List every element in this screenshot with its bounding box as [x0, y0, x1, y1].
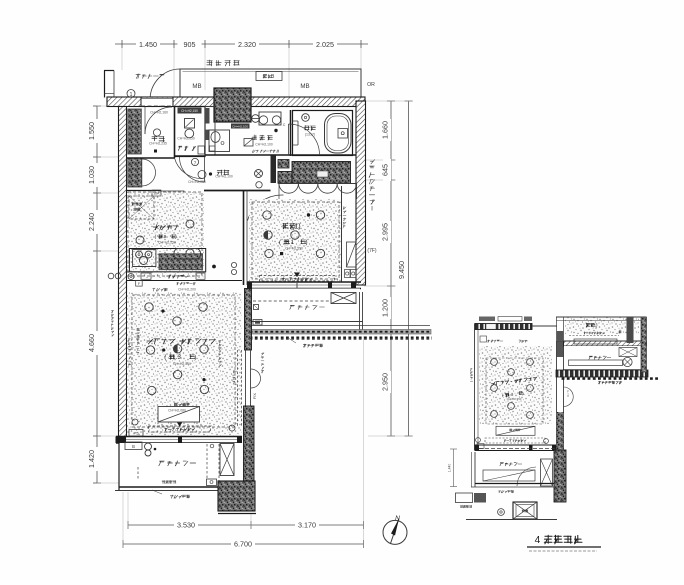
svg-text:CH=H2,550: CH=H2,550 — [173, 362, 191, 366]
svg-text:CH=H2,160: CH=H2,160 — [150, 111, 168, 115]
svg-text:1.450: 1.450 — [139, 40, 157, 49]
svg-text:645: 645 — [381, 164, 390, 176]
svg-text:2.9: 2.9 — [160, 234, 167, 240]
svg-text:20A: 20A — [154, 192, 161, 196]
svg-text:(7F): (7F) — [367, 248, 377, 254]
svg-text:(1): (1) — [592, 323, 598, 328]
svg-text:CH=H2,100: CH=H2,100 — [255, 143, 272, 147]
svg-text:6.700: 6.700 — [234, 539, 252, 548]
svg-text:I: I — [371, 206, 373, 213]
svg-text:FIX: FIX — [253, 393, 257, 399]
svg-text:9.450: 9.450 — [397, 261, 406, 279]
svg-text:2.320: 2.320 — [238, 40, 256, 49]
svg-text:1.200: 1.200 — [381, 299, 390, 317]
svg-text:1.420: 1.420 — [87, 450, 96, 468]
svg-text:): ) — [305, 239, 307, 246]
svg-text:X: X — [567, 394, 569, 398]
svg-text:1.660: 1.660 — [381, 121, 390, 139]
svg-text:CH=H2,550: CH=H2,550 — [507, 397, 522, 401]
svg-text:CH=H2,550: CH=H2,550 — [285, 247, 303, 251]
svg-text:1.030: 1.030 — [87, 166, 96, 184]
svg-text:2.025: 2.025 — [316, 40, 334, 49]
svg-text:1.550: 1.550 — [87, 122, 96, 140]
svg-text:P5: P5 — [134, 431, 140, 436]
svg-text:CH=H2,080: CH=H2,080 — [168, 409, 186, 413]
svg-text:CH=H2,235: CH=H2,235 — [149, 142, 167, 146]
svg-text:CH=H2,100: CH=H2,100 — [232, 125, 248, 129]
svg-text:MB: MB — [300, 83, 309, 90]
svg-text:3.170: 3.170 — [298, 520, 316, 529]
svg-text:CH=H2,200: CH=H2,200 — [178, 288, 196, 292]
svg-text:7: 7 — [194, 161, 197, 166]
svg-text:3.530: 3.530 — [177, 520, 195, 529]
svg-text:CH=H2,150: CH=H2,150 — [177, 137, 194, 141]
svg-text:6.1: 6.1 — [285, 239, 294, 246]
svg-text:2.950: 2.950 — [381, 373, 390, 391]
svg-text:CH=H2,150: CH=H2,150 — [181, 109, 198, 113]
svg-text:MB: MB — [192, 83, 201, 90]
svg-text:C: C — [283, 123, 286, 127]
svg-text:CH=H2,250: CH=H2,250 — [158, 241, 176, 245]
svg-text:11.3: 11.3 — [169, 354, 181, 361]
svg-text:2.995: 2.995 — [381, 223, 390, 241]
svg-text:B: B — [132, 444, 135, 449]
svg-text:2.240: 2.240 — [87, 213, 96, 231]
svg-text:4.660: 4.660 — [87, 334, 96, 352]
svg-text:4: 4 — [535, 535, 541, 546]
svg-text:OR: OR — [367, 82, 375, 88]
svg-text:(1): (1) — [292, 224, 301, 231]
svg-text:): ) — [194, 354, 196, 361]
svg-text:1,440: 1,440 — [448, 464, 452, 473]
svg-text:N: N — [395, 515, 400, 522]
svg-text:CH=H2,100: CH=H2,100 — [215, 175, 232, 179]
svg-text:905: 905 — [184, 40, 196, 49]
